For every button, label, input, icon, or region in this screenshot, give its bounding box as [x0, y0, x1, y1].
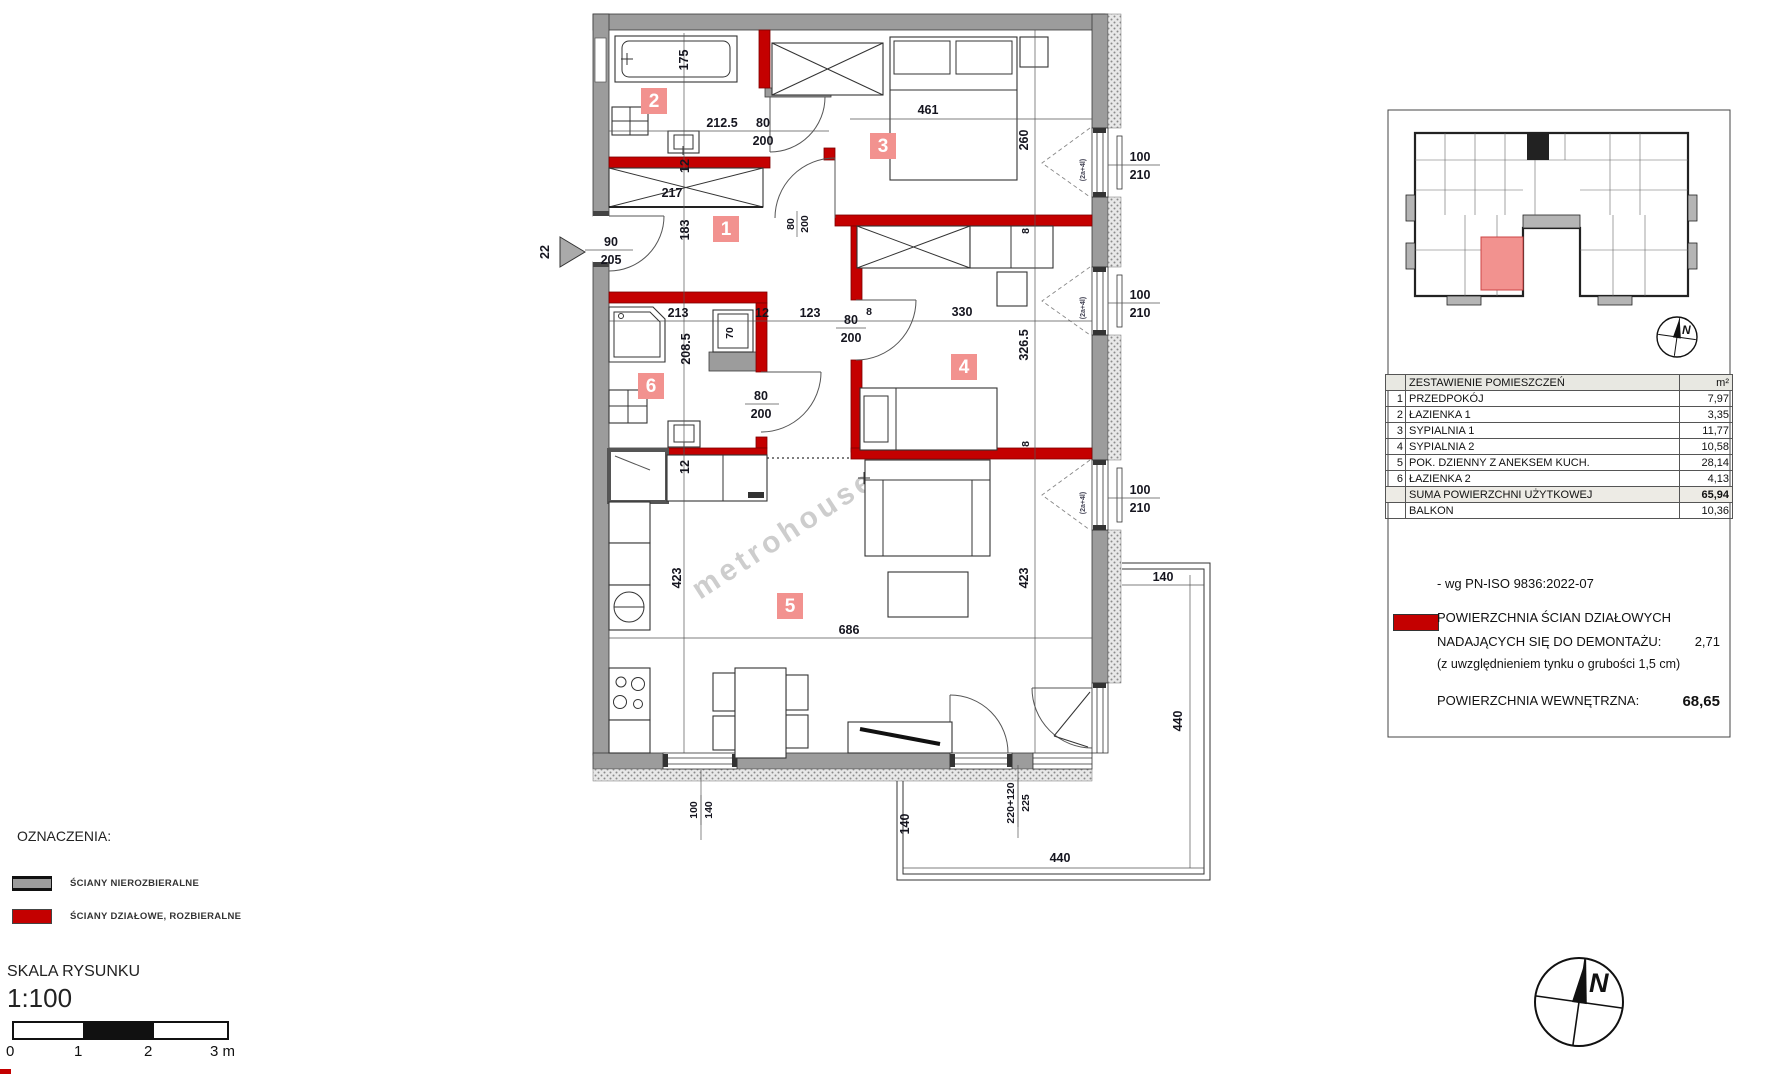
svg-text:440: 440 [1171, 711, 1185, 732]
dim-2125: 212.5 [706, 116, 737, 130]
svg-text:200: 200 [751, 407, 772, 421]
legend-item-structural: ŚCIANY NIEROZBIERALNE [12, 876, 199, 891]
svg-text:5: 5 [785, 596, 796, 617]
floorplan-sheet: metrohouse [0, 0, 1788, 1080]
svg-text:80: 80 [785, 218, 797, 230]
svg-text:8: 8 [1020, 441, 1032, 447]
dim-686: 686 [839, 623, 860, 637]
svg-text:210: 210 [1130, 168, 1151, 182]
internal-area-value: 68,65 [1682, 693, 1720, 710]
scale-tick: 3 m [210, 1043, 235, 1060]
scale-tick: 0 [6, 1043, 14, 1060]
svg-text:3: 3 [878, 136, 889, 157]
dim-70: 70 [724, 327, 736, 339]
legend-title: OZNACZENIA: [17, 828, 111, 844]
north-compass: N [1529, 952, 1628, 1051]
red-wall-swatch [1393, 614, 1439, 631]
svg-text:N: N [1589, 968, 1609, 998]
svg-text:100: 100 [688, 801, 700, 819]
building-minimap [1406, 133, 1697, 305]
internal-area-line: POWIERZCHNIA WEWNĘTRZNA: 68,65 [1437, 693, 1720, 710]
scale-value: 1:100 [7, 983, 72, 1014]
table-row: 4SYPIALNIA 210,58 [1386, 439, 1733, 455]
svg-text:8: 8 [1020, 228, 1032, 234]
balcony-door [950, 753, 1012, 769]
svg-text:205: 205 [601, 253, 622, 267]
svg-text:423: 423 [1017, 568, 1031, 589]
svg-text:423: 423 [670, 568, 684, 589]
svg-text:100: 100 [1130, 150, 1151, 164]
table-sum-row: SUMA POWIERZCHNI UŻYTKOWEJ65,94 [1386, 487, 1733, 503]
norm-note: - wg PN-ISO 9836:2022-07 [1437, 576, 1594, 591]
svg-text:4: 4 [959, 357, 970, 378]
plan-svg: metrohouse [0, 0, 1788, 1080]
dim-tub: 175 [677, 50, 691, 71]
table-row: 5POK. DZIENNY Z ANEKSEM KUCH.28,14 [1386, 455, 1733, 471]
svg-text:(2a+4l): (2a+4l) [1080, 297, 1087, 319]
svg-text:6: 6 [646, 376, 657, 397]
structural-walls [593, 14, 1108, 769]
svg-text:210: 210 [1130, 501, 1151, 515]
window-label-2: 100 210 [1130, 288, 1151, 320]
svg-text:80: 80 [754, 389, 768, 403]
svg-text:1: 1 [721, 219, 732, 240]
sink [609, 585, 650, 630]
structural-wall-swatch [12, 876, 52, 891]
entry-number: 22 [538, 245, 552, 259]
partition-wall-swatch [12, 909, 52, 924]
svg-text:200: 200 [841, 331, 862, 345]
svg-text:440: 440 [1050, 851, 1071, 865]
svg-text:12: 12 [678, 159, 692, 173]
dim-330: 330 [952, 305, 973, 319]
demontaz-line2: NADAJĄCYCH SIĘ DO DEMONTAŻU: 2,71 [1437, 634, 1720, 649]
entry-arrow: 22 [538, 237, 585, 267]
svg-text:220+120: 220+120 [1005, 782, 1017, 823]
furniture [609, 36, 1053, 758]
dim-2085: 208.5 [679, 333, 693, 364]
svg-text:12: 12 [755, 306, 769, 320]
svg-text:8: 8 [866, 306, 872, 318]
legend-item-partition: ŚCIANY DZIAŁOWE, ROZBIERALNE [12, 909, 241, 924]
window-label-1: 100 210 [1130, 150, 1151, 182]
svg-text:(2a+4l): (2a+4l) [1080, 492, 1087, 514]
svg-text:140: 140 [703, 801, 715, 819]
svg-text:2: 2 [649, 91, 660, 112]
badge-room-3: 3 [870, 133, 896, 159]
scale-tick: 1 [74, 1043, 82, 1060]
badge-room-5: 5 [777, 593, 803, 619]
stove [609, 668, 650, 720]
demontaz-line3: (z uwzględnieniem tynku o grubości 1,5 c… [1437, 657, 1680, 671]
corner-glazing [1033, 683, 1108, 769]
dim-217: 217 [662, 186, 683, 200]
shower [609, 307, 665, 362]
svg-text:90: 90 [604, 235, 618, 249]
nightstand-3 [1020, 37, 1048, 67]
double-bed [890, 37, 1017, 180]
svg-text:200: 200 [753, 134, 774, 148]
svg-text:100: 100 [1130, 288, 1151, 302]
tv-cabinet [848, 722, 952, 753]
badge-room-6: 6 [638, 373, 664, 399]
room-schedule-table: ZESTAWIENIE POMIESZCZEŃm² 1PRZEDPOKÓJ7,9… [1385, 374, 1733, 519]
dim-461: 461 [918, 103, 939, 117]
window-bottom [663, 753, 737, 769]
svg-text:140: 140 [1153, 570, 1174, 584]
svg-text:N: N [1682, 323, 1691, 337]
table-balkon-row: BALKON10,36 [1386, 503, 1733, 519]
badge-room-1: 1 [713, 216, 739, 242]
dim-183: 183 [678, 220, 692, 241]
table-row: 1PRZEDPOKÓJ7,97 [1386, 391, 1733, 407]
svg-text:80: 80 [756, 116, 770, 130]
scale-bar [12, 1021, 229, 1040]
wardrobe-bed3 [772, 43, 883, 95]
single-bed [860, 388, 997, 450]
dining-set [713, 668, 808, 758]
demontaz-value: 2,71 [1695, 634, 1720, 649]
dim-3265: 326.5 [1017, 329, 1031, 360]
window-label-3: 100 210 [1130, 483, 1151, 515]
fridge [609, 450, 667, 502]
svg-text:80: 80 [844, 313, 858, 327]
svg-text:100: 100 [1130, 483, 1151, 497]
svg-text:225: 225 [1020, 794, 1032, 812]
panel-north-compass: N [1656, 316, 1699, 359]
table-title: ZESTAWIENIE POMIESZCZEŃ [1406, 375, 1680, 391]
highlighted-unit [1481, 237, 1523, 290]
scale-tick: 2 [144, 1043, 152, 1060]
badge-room-4: 4 [951, 354, 977, 380]
balcony-door-label: 220+120 225 [1005, 779, 1032, 827]
toilet-2 [668, 131, 699, 155]
table-row: 3SYPIALNIA 111,77 [1386, 423, 1733, 439]
table-row: 6ŁAZIENKA 24,13 [1386, 471, 1733, 487]
sofa [858, 460, 990, 556]
dim-260: 260 [1017, 130, 1031, 151]
demontaz-line1: POWIERZCHNIA ŚCIAN DZIAŁOWYCH [1437, 610, 1671, 625]
table-row: 2ŁAZIENKA 13,35 [1386, 407, 1733, 423]
bathtub [615, 36, 737, 82]
nightstand-4 [997, 272, 1027, 306]
badge-room-2: 2 [641, 88, 667, 114]
red-corner-mark [0, 1069, 11, 1074]
coffee-table [888, 572, 968, 617]
scale-title: SKALA RYSUNKU [7, 963, 140, 981]
dim-213: 213 [668, 306, 689, 320]
svg-text:140: 140 [898, 814, 912, 835]
svg-text:12: 12 [678, 460, 692, 474]
svg-text:210: 210 [1130, 306, 1151, 320]
bottom-window-label: 100 140 [688, 795, 715, 825]
svg-text:(2a+4l): (2a+4l) [1080, 159, 1087, 181]
svg-text:200: 200 [799, 215, 811, 233]
dim-123: 123 [800, 306, 821, 320]
